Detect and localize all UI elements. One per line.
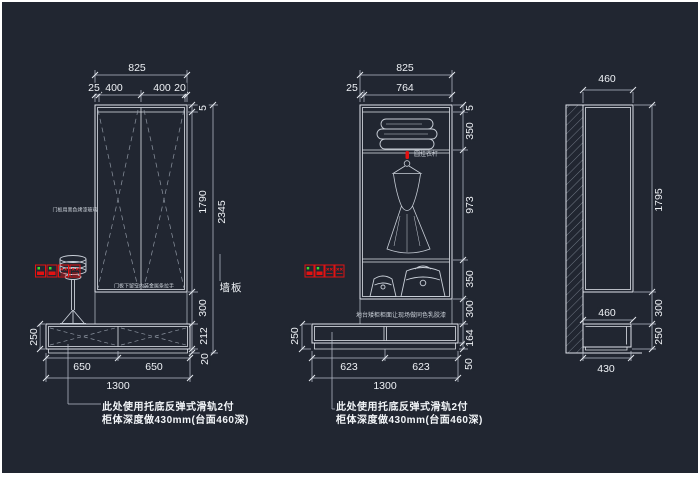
hanging-rod-label: 圆挂衣杆 <box>414 152 438 158</box>
middle-view-wall-panel-lines <box>360 299 452 324</box>
dim-right-gap: 300 <box>654 298 665 318</box>
middle-view-dim-ticks <box>299 72 466 381</box>
dim-left-height-total: 2345 <box>217 199 228 224</box>
dim-left-height-seg-4: 212 <box>199 326 210 346</box>
dim-mid-width-seg-2: 764 <box>395 83 415 94</box>
left-view-cabinet <box>95 105 187 292</box>
floor-lamp <box>60 256 86 324</box>
hanging-rod-bracket <box>406 151 410 159</box>
dim-left-width-seg-1: 25 <box>87 83 101 94</box>
dim-mid-base-height: 250 <box>290 326 301 346</box>
dim-mid-base-seg-2: 623 <box>411 362 431 373</box>
dim-right-base-height: 250 <box>654 326 665 346</box>
dim-left-height-seg-5: 20 <box>200 352 211 366</box>
dim-mid-width-seg-1: 25 <box>345 83 359 94</box>
dim-right-base-depth: 430 <box>596 364 616 375</box>
wall-panel-label: 墙板 <box>220 283 243 294</box>
dim-left-base-seg-2: 650 <box>144 362 164 373</box>
dim-mid-height-seg-4: 350 <box>465 269 476 289</box>
dim-right-width-top: 460 <box>597 74 617 85</box>
left-view-wall-panel-lines <box>95 292 187 324</box>
right-view-wall-hatch <box>566 105 583 353</box>
door-handle-note: 门板下留空内装金属条拉手 <box>114 285 174 290</box>
dim-mid-base-seg-1: 623 <box>339 362 359 373</box>
left-view-base-cabinet <box>46 324 190 353</box>
dim-mid-height-seg-6: 164 <box>465 328 476 348</box>
dim-mid-base-total: 1300 <box>372 381 397 392</box>
dim-mid-width-total: 825 <box>395 63 415 74</box>
dim-left-height-seg-3: 300 <box>198 298 209 318</box>
dim-left-base-seg-1: 650 <box>72 362 92 373</box>
dim-right-height: 1795 <box>654 187 665 212</box>
dim-mid-height-seg-1: 5 <box>465 104 476 112</box>
dim-left-height-seg-1: 5 <box>198 104 209 112</box>
dim-mid-height-seg-3: 973 <box>465 195 476 215</box>
counter-finish-note: 地台矮柜柜面让现场做同色乳胶漆 <box>356 313 446 319</box>
door-material-note: 门板用黑色烤漆玻璃 <box>52 209 97 214</box>
left-socket-panel <box>36 265 81 277</box>
dim-mid-height-seg-5: 300 <box>465 299 476 319</box>
left-callout-line-1: 此处使用托底反弹式滑轨2付 <box>102 403 234 413</box>
mid-callout-line-1: 此处使用托底反弹式滑轨2付 <box>336 403 468 413</box>
middle-socket-panel <box>305 265 344 277</box>
dim-left-width-seg-4: 20 <box>173 83 187 94</box>
folded-clothes <box>377 119 437 149</box>
dim-mid-height-seg-7: 50 <box>464 357 475 371</box>
handbags <box>370 266 445 297</box>
mid-callout-line-2: 柜体深度做430mm(台面460深) <box>336 416 483 426</box>
dim-left-base-total: 1300 <box>105 381 130 392</box>
cad-canvas: 825 25 400 400 20 5 1790 300 212 20 2345… <box>2 2 698 473</box>
right-view-base-cabinet <box>583 324 631 350</box>
dim-left-width-seg-3: 400 <box>152 83 172 94</box>
dress <box>387 161 430 253</box>
left-callout-line-2: 柜体深度做430mm(台面460深) <box>102 416 249 426</box>
left-view-dim-ticks <box>37 72 216 381</box>
left-view-dimension-lines <box>40 70 220 404</box>
dim-left-base-height: 250 <box>29 327 40 347</box>
dim-left-height-seg-2: 1790 <box>198 189 209 214</box>
right-view-dimension-lines <box>583 90 656 361</box>
cad-drawing-page: 825 25 400 400 20 5 1790 300 212 20 2345… <box>0 0 700 477</box>
dim-left-width-total: 825 <box>127 63 147 74</box>
dim-right-counter-depth: 460 <box>597 308 617 319</box>
dim-left-width-seg-2: 400 <box>104 83 124 94</box>
dim-mid-height-seg-2: 350 <box>465 121 476 141</box>
middle-view-base-cabinet <box>312 324 458 349</box>
right-view-cabinet <box>583 105 633 292</box>
